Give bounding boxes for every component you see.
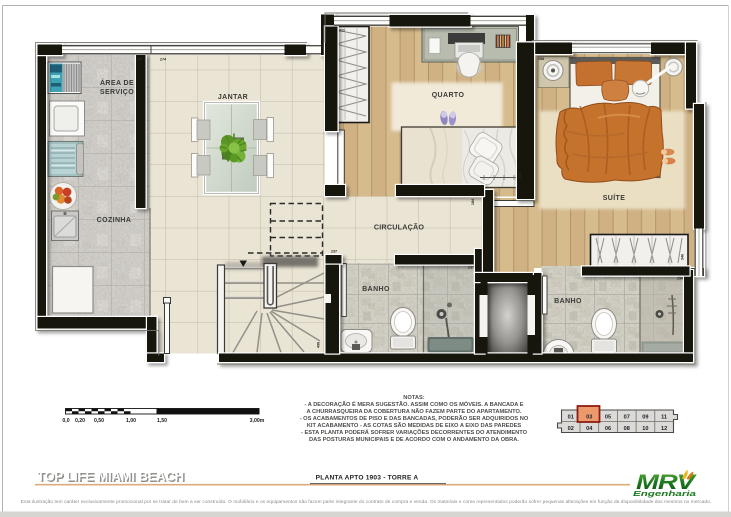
svg-text:02: 02 bbox=[568, 426, 574, 432]
svg-text:12: 12 bbox=[661, 426, 667, 432]
svg-text:SERVIÇO: SERVIÇO bbox=[100, 89, 134, 96]
svg-text:10: 10 bbox=[642, 426, 648, 432]
svg-text:COZINHA: COZINHA bbox=[97, 217, 132, 224]
svg-text:0,0: 0,0 bbox=[62, 418, 69, 424]
svg-text:TOP LIFE MIAMI BEACH: TOP LIFE MIAMI BEACH bbox=[37, 469, 184, 484]
svg-text:KIT ACABAMENTO - AS COTAS SÃO: KIT ACABAMENTO - AS COTAS SÃO MEDIDAS DE… bbox=[307, 422, 522, 429]
svg-text:BANHO: BANHO bbox=[362, 286, 390, 293]
svg-text:- OS ACABAMENTOS DE PISO E DA: - OS ACABAMENTOS DE PISO E DAS BANCADAS,… bbox=[300, 415, 529, 422]
svg-text:QUARTO: QUARTO bbox=[432, 92, 465, 99]
svg-text:06: 06 bbox=[605, 426, 611, 432]
svg-text:346: 346 bbox=[681, 254, 685, 260]
svg-text:490: 490 bbox=[317, 342, 321, 348]
svg-text:BANHO: BANHO bbox=[554, 298, 582, 305]
svg-text:271: 271 bbox=[518, 172, 522, 178]
svg-text:04: 04 bbox=[586, 426, 593, 432]
svg-text:237: 237 bbox=[331, 250, 337, 254]
svg-text:JANTAR: JANTAR bbox=[218, 94, 248, 101]
svg-text:CIRCULAÇÃO: CIRCULAÇÃO bbox=[374, 223, 425, 232]
svg-text:Engenharia: Engenharia bbox=[633, 489, 696, 498]
svg-text:254: 254 bbox=[677, 277, 684, 281]
svg-text:01: 01 bbox=[568, 415, 574, 421]
svg-text:05: 05 bbox=[605, 415, 611, 421]
svg-text:PLANTA APTO 1903 - TORRE A: PLANTA APTO 1903 - TORRE A bbox=[316, 475, 419, 482]
svg-text:03: 03 bbox=[586, 415, 592, 421]
svg-text:Esta ilustração tem caráter ex: Esta ilustração tem caráter exclusivamen… bbox=[21, 499, 711, 505]
svg-text:3,00m: 3,00m bbox=[250, 418, 265, 424]
svg-text:ÁREA DE: ÁREA DE bbox=[100, 78, 134, 87]
svg-text:237: 237 bbox=[468, 266, 474, 270]
svg-text:1,50: 1,50 bbox=[157, 418, 167, 424]
svg-text:0,50: 0,50 bbox=[94, 418, 104, 424]
svg-text:SUÍTE: SUÍTE bbox=[603, 193, 626, 202]
svg-text:11: 11 bbox=[661, 415, 667, 421]
svg-text:07: 07 bbox=[624, 415, 630, 421]
svg-text:A CHURRASQUEIRA DA COBERTURA N: A CHURRASQUEIRA DA COBERTURA NÃO FAZEM P… bbox=[307, 408, 522, 415]
svg-text:258: 258 bbox=[538, 57, 544, 61]
svg-text:08: 08 bbox=[624, 426, 630, 432]
svg-text:184: 184 bbox=[471, 198, 475, 205]
svg-text:DAS POSTURAS MUNICIPAIS E DE: DAS POSTURAS MUNICIPAIS E DE ACORDO COM … bbox=[309, 437, 519, 443]
svg-text:- ESTA PLANTA PODERÁ SOFRER VA: - ESTA PLANTA PODERÁ SOFRER VARIAÇÕES DE… bbox=[301, 429, 528, 436]
svg-text:176: 176 bbox=[136, 58, 142, 62]
svg-text:- A DECORAÇÃO É MERA SUGESTÃO.: - A DECORAÇÃO É MERA SUGESTÃO. ASSIM COM… bbox=[304, 400, 523, 408]
svg-text:311: 311 bbox=[339, 29, 345, 33]
svg-text:274: 274 bbox=[160, 58, 167, 62]
svg-text:1,00: 1,00 bbox=[126, 418, 136, 424]
svg-text:09: 09 bbox=[642, 415, 648, 421]
svg-text:NOTAS:: NOTAS: bbox=[403, 395, 424, 401]
svg-text:0,20: 0,20 bbox=[75, 418, 85, 424]
